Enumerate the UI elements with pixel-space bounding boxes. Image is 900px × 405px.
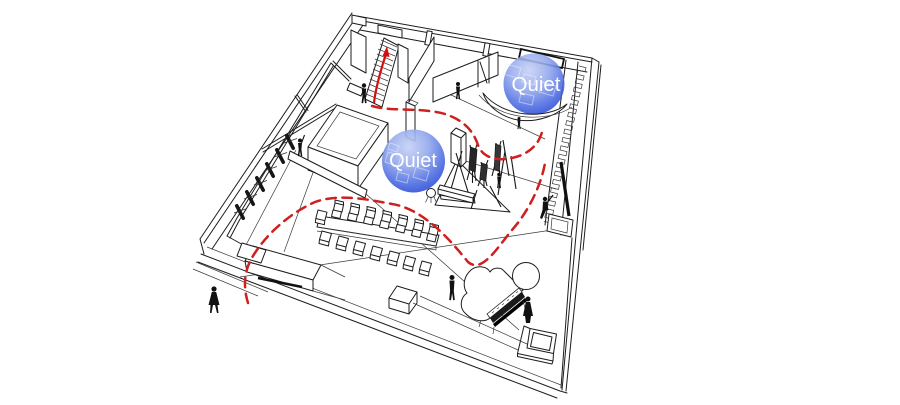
svg-text:Quiet: Quiet bbox=[389, 150, 437, 172]
svg-text:Quiet: Quiet bbox=[512, 73, 561, 96]
